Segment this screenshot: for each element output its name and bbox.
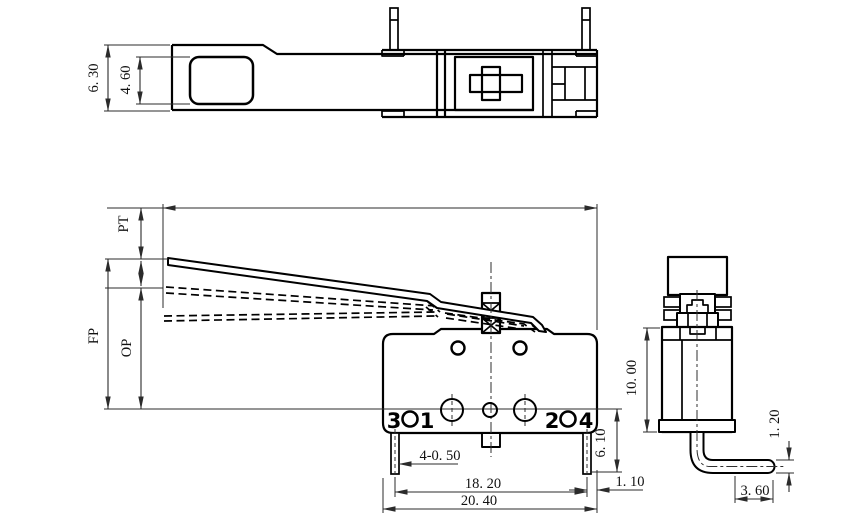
top-view-back-detail (543, 50, 597, 117)
top-view-body-left-wall (437, 50, 445, 117)
dim-6-30-extensions (104, 45, 170, 111)
dim-overall-label: 20. 40 (461, 493, 497, 509)
dim-pin-thickness-label: 1. 20 (767, 410, 783, 439)
top-view: 6. 30 4. 60 (86, 8, 597, 117)
top-view-plunger-vertical (482, 67, 500, 100)
terminal-label-1: 1 (420, 409, 435, 433)
top-view-lever-hole (190, 57, 253, 104)
dim-4-60-label: 4. 60 (118, 66, 134, 95)
dim-body-height-label: 10. 00 (624, 360, 640, 396)
dim-6-30-label: 6. 30 (86, 64, 102, 93)
drawing-canvas: 6. 30 4. 60 (0, 0, 860, 520)
dim-edge-offset-label: 1. 10 (616, 474, 645, 490)
dim-pitch-label: 18. 20 (465, 476, 501, 492)
top-view-pin-right (582, 8, 590, 50)
dim-terminal-length-label: 6. 10 (593, 429, 609, 458)
dim-4-60-extensions (136, 57, 190, 104)
side-hinge-tab-right-upper (715, 297, 731, 307)
dim-pt-label: PT (116, 215, 132, 232)
terminal-label-2: 2 (545, 409, 560, 433)
dim-pin-thickness-extensions (776, 460, 794, 473)
top-view-plunger-horizontal (470, 75, 522, 92)
side-view: 10. 00 1. 20 3. 60 (624, 257, 794, 503)
dim-fp-op-extensions (105, 259, 168, 288)
side-hinge-tab-left-upper (664, 297, 680, 307)
technical-drawing-svg: 6. 30 4. 60 (0, 0, 860, 520)
side-lever-blade (668, 257, 727, 295)
dim-op-label: OP (119, 339, 135, 358)
terminal-label-4: 4 (579, 409, 594, 433)
dim-body-height-extensions (643, 328, 660, 432)
dim-terminal-width-label: 4-0. 50 (419, 448, 460, 464)
terminal-label-3: 3 (387, 409, 402, 433)
dim-pin-reach-label: 3. 60 (741, 483, 770, 499)
front-view: 3 1 2 4 PT FP OP 4-0. 50 18. 20 20. 40 (86, 204, 645, 513)
dim-fp-label: FP (86, 328, 102, 344)
top-view-pin-left (390, 8, 398, 50)
lever-full-travel-dashed (164, 312, 437, 321)
